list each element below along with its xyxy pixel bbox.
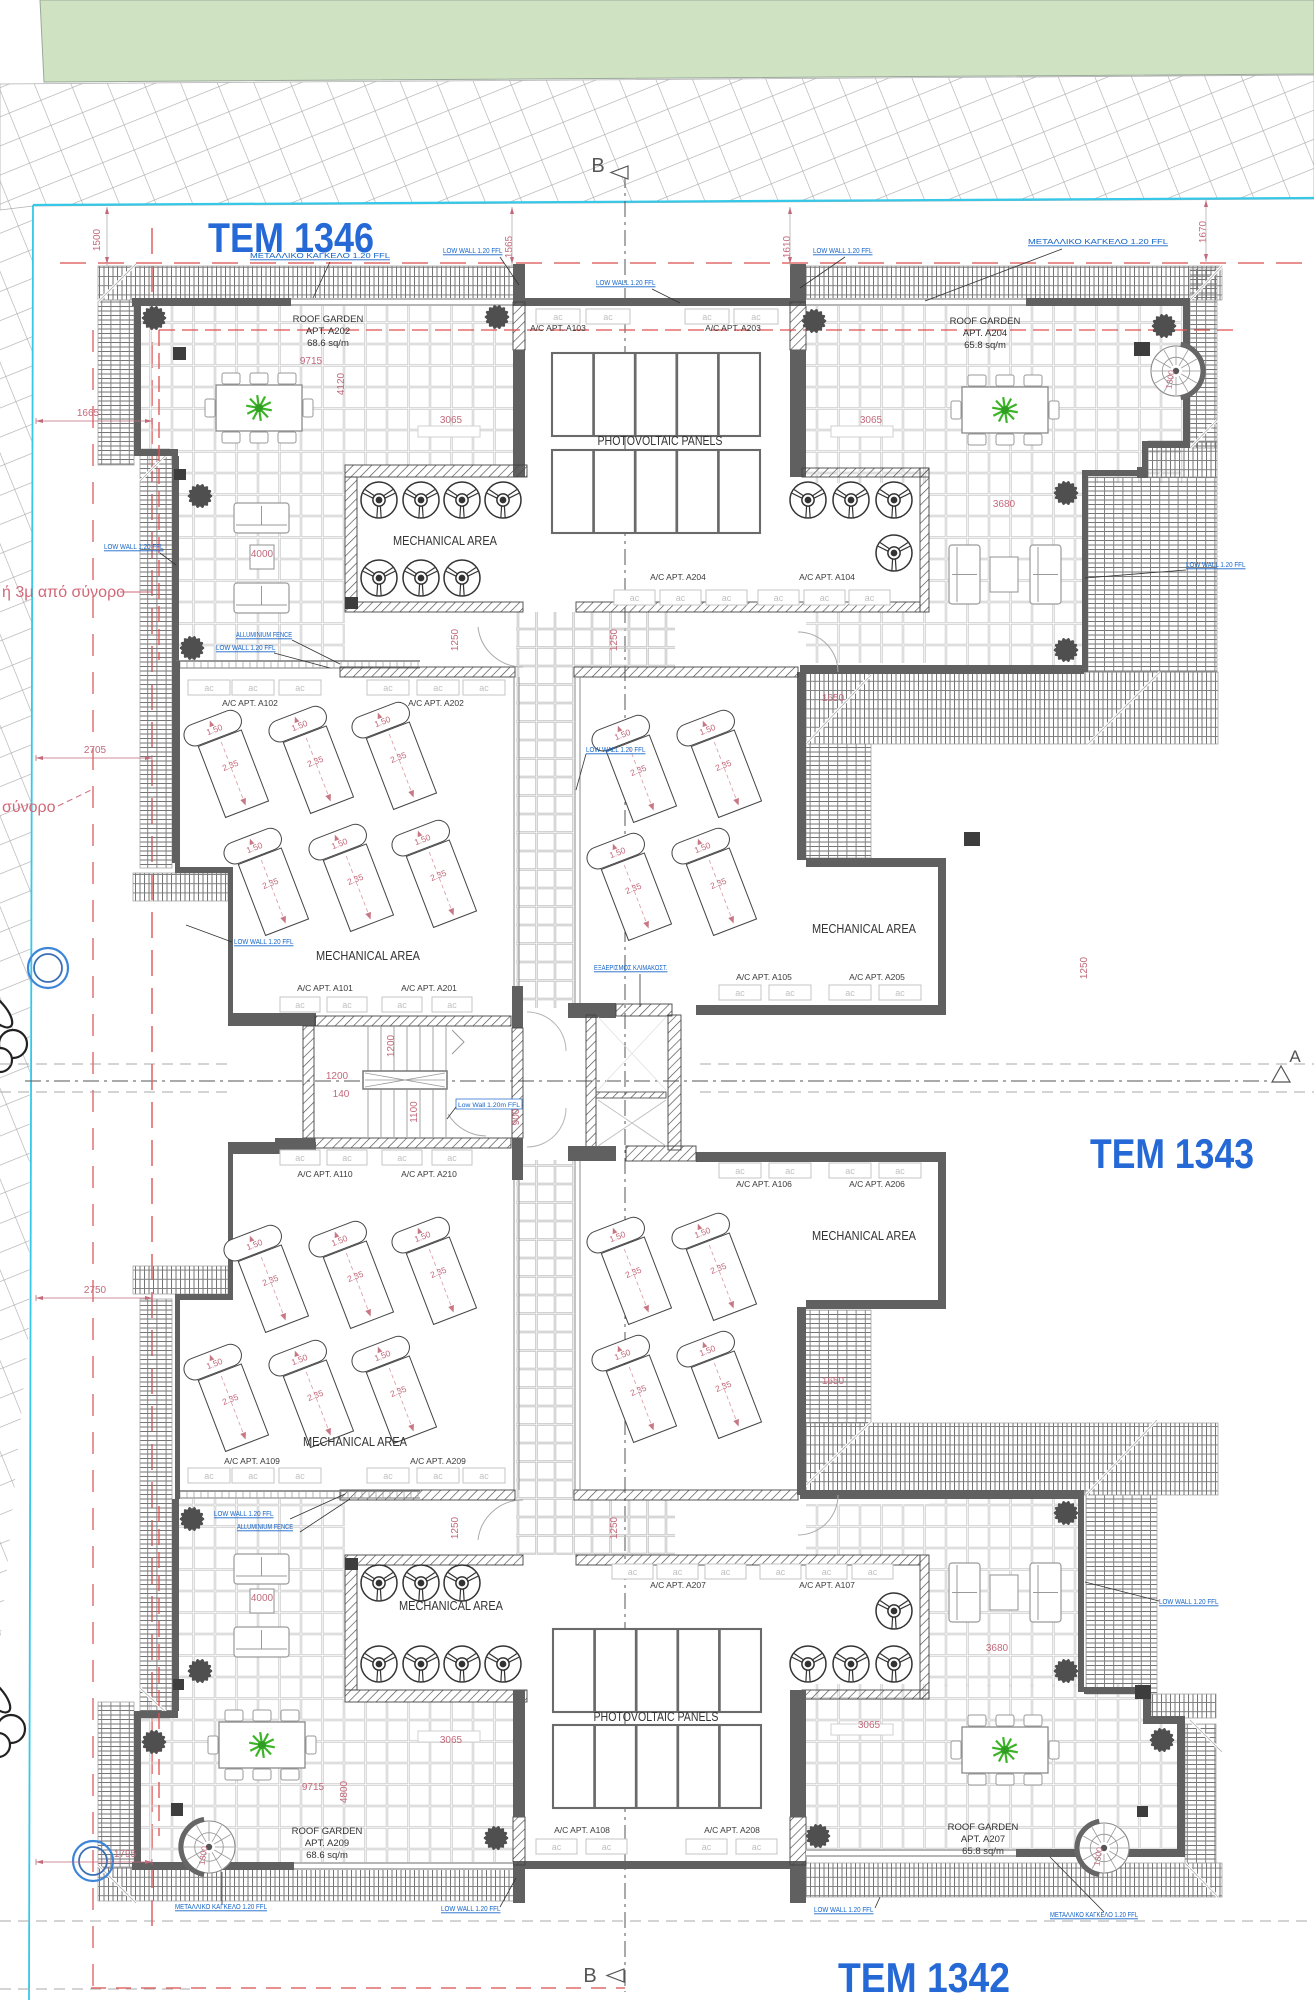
svg-text:1665: 1665 bbox=[77, 408, 100, 419]
svg-text:ac: ac bbox=[735, 1166, 745, 1176]
svg-text:ac: ac bbox=[295, 1153, 305, 1163]
svg-text:ac: ac bbox=[868, 1567, 878, 1577]
svg-text:A/C APT. A110: A/C APT. A110 bbox=[297, 1169, 352, 1179]
svg-text:ac: ac bbox=[397, 1153, 407, 1163]
svg-text:1250: 1250 bbox=[1079, 956, 1090, 979]
svg-text:A/C APT. A210: A/C APT. A210 bbox=[401, 1169, 457, 1179]
svg-text:APT. A209: APT. A209 bbox=[305, 1838, 349, 1849]
svg-text:1200: 1200 bbox=[326, 1071, 349, 1082]
svg-text:ΜΕΤΑΛΛΙΚΟ ΚΑΓΚΕΛΟ 1.20 FFL: ΜΕΤΑΛΛΙΚΟ ΚΑΓΚΕΛΟ 1.20 FFL bbox=[1028, 237, 1168, 246]
svg-text:1500: 1500 bbox=[92, 228, 103, 251]
svg-text:140: 140 bbox=[333, 1089, 350, 1100]
svg-text:σύνορο: σύνορο bbox=[2, 799, 56, 816]
svg-text:1100: 1100 bbox=[409, 1101, 420, 1123]
svg-text:9715: 9715 bbox=[302, 1782, 325, 1793]
svg-text:MECHANICAL AREA: MECHANICAL AREA bbox=[393, 534, 498, 548]
svg-text:A/C APT. A103: A/C APT. A103 bbox=[530, 323, 586, 333]
svg-text:LOW WALL 1.20 FFL: LOW WALL 1.20 FFL bbox=[813, 246, 873, 255]
svg-text:ac: ac bbox=[248, 683, 258, 693]
svg-text:ac: ac bbox=[295, 1471, 305, 1481]
svg-text:ac: ac bbox=[433, 683, 443, 693]
svg-text:ac: ac bbox=[845, 1166, 855, 1176]
svg-text:LOW WALL 1.20 FFL: LOW WALL 1.20 FFL bbox=[586, 745, 646, 754]
svg-text:4120: 4120 bbox=[336, 372, 347, 395]
svg-text:ac: ac bbox=[553, 312, 563, 322]
svg-text:ROOF GARDEN: ROOF GARDEN bbox=[292, 1826, 363, 1837]
svg-text:ac: ac bbox=[865, 593, 875, 603]
svg-text:A/C APT. A206: A/C APT. A206 bbox=[849, 1179, 905, 1189]
svg-text:LOW WALL 1.20 FFL: LOW WALL 1.20 FFL bbox=[214, 1509, 274, 1518]
svg-text:3065: 3065 bbox=[440, 1735, 463, 1746]
svg-text:LOW WALL 1.20 FFL: LOW WALL 1.20 FFL bbox=[1186, 560, 1246, 569]
svg-text:1610: 1610 bbox=[782, 235, 793, 258]
svg-text:A/C APT. A207: A/C APT. A207 bbox=[650, 1580, 706, 1590]
svg-text:1250: 1250 bbox=[609, 1516, 620, 1539]
svg-text:ac: ac bbox=[673, 1567, 683, 1577]
svg-text:900: 900 bbox=[511, 1108, 522, 1125]
svg-text:ac: ac bbox=[342, 1000, 352, 1010]
svg-text:MECHANICAL AREA: MECHANICAL AREA bbox=[812, 922, 917, 936]
svg-text:Low Wall 1.20m FFL: Low Wall 1.20m FFL bbox=[458, 1102, 520, 1109]
svg-text:ac: ac bbox=[479, 1471, 489, 1481]
svg-text:A/C APT. A202: A/C APT. A202 bbox=[408, 698, 464, 708]
svg-text:A/C APT. A106: A/C APT. A106 bbox=[736, 1179, 792, 1189]
svg-text:ac: ac bbox=[721, 1567, 731, 1577]
svg-text:65.8 sq/m: 65.8 sq/m bbox=[964, 340, 1006, 351]
svg-text:3680: 3680 bbox=[993, 499, 1016, 510]
svg-text:3065: 3065 bbox=[858, 1720, 881, 1731]
svg-text:ac: ac bbox=[702, 1842, 712, 1852]
svg-text:ac: ac bbox=[204, 683, 214, 693]
svg-text:A: A bbox=[1289, 1047, 1301, 1066]
svg-text:LOW WALL 1.20 FFL: LOW WALL 1.20 FFL bbox=[216, 643, 276, 652]
svg-text:3680: 3680 bbox=[986, 1643, 1009, 1654]
svg-text:LOW WALL 1.20 FFL: LOW WALL 1.20 FFL bbox=[234, 937, 294, 946]
svg-text:TEM 1342: TEM 1342 bbox=[838, 1954, 1010, 2000]
svg-text:ac: ac bbox=[785, 988, 795, 998]
svg-text:ac: ac bbox=[785, 1166, 795, 1176]
svg-text:ac: ac bbox=[895, 1166, 905, 1176]
svg-text:3065: 3065 bbox=[440, 415, 463, 426]
svg-text:ac: ac bbox=[295, 683, 305, 693]
svg-text:ac: ac bbox=[845, 988, 855, 998]
svg-text:ΜΕΤΑΛΛΙΚΟ ΚΑΓΚΕΛΟ 1.20 FFL: ΜΕΤΑΛΛΙΚΟ ΚΑΓΚΕΛΟ 1.20 FFL bbox=[250, 251, 390, 260]
svg-text:A/C APT. A204: A/C APT. A204 bbox=[650, 572, 706, 582]
svg-text:ROOF GARDEN: ROOF GARDEN bbox=[948, 1822, 1019, 1833]
svg-text:3065: 3065 bbox=[860, 415, 883, 426]
svg-text:LOW WALL 1.20 FFL: LOW WALL 1.20 FFL bbox=[443, 246, 503, 255]
svg-text:1650: 1650 bbox=[822, 1376, 845, 1387]
svg-text:ac: ac bbox=[397, 1000, 407, 1010]
svg-text:ac: ac bbox=[602, 1842, 612, 1852]
svg-text:TEM 1343: TEM 1343 bbox=[1090, 1130, 1254, 1177]
svg-text:ac: ac bbox=[676, 593, 686, 603]
svg-text:ΜΕΤΑΛΛΙΚΟ ΚΑΓΚΕΛΟ 1.20 FFL: ΜΕΤΑΛΛΙΚΟ ΚΑΓΚΕΛΟ 1.20 FFL bbox=[175, 1902, 267, 1911]
svg-text:ac: ac bbox=[774, 593, 784, 603]
svg-text:1200: 1200 bbox=[386, 1034, 397, 1057]
svg-text:ac: ac bbox=[295, 1000, 305, 1010]
svg-text:A/C APT. A208: A/C APT. A208 bbox=[704, 1825, 760, 1835]
svg-text:A/C APT. A104: A/C APT. A104 bbox=[799, 572, 855, 582]
svg-text:9715: 9715 bbox=[300, 356, 323, 367]
svg-text:MECHANICAL AREA: MECHANICAL AREA bbox=[303, 1435, 408, 1449]
svg-text:ac: ac bbox=[751, 312, 761, 322]
svg-text:ac: ac bbox=[479, 683, 489, 693]
svg-text:PHOTOVOLTAIC PANELS: PHOTOVOLTAIC PANELS bbox=[598, 434, 723, 448]
svg-text:LOW WALL 1.20 FFL: LOW WALL 1.20 FFL bbox=[104, 542, 164, 551]
svg-text:ac: ac bbox=[383, 1471, 393, 1481]
svg-text:A/C APT. A108: A/C APT. A108 bbox=[554, 1825, 610, 1835]
svg-text:A/C APT. A101: A/C APT. A101 bbox=[297, 983, 353, 993]
svg-text:ac: ac bbox=[702, 312, 712, 322]
svg-text:ROOF GARDEN: ROOF GARDEN bbox=[950, 316, 1021, 327]
svg-text:ac: ac bbox=[752, 1842, 762, 1852]
svg-text:ac: ac bbox=[628, 1567, 638, 1577]
svg-text:ALLUMINIUM FENCE: ALLUMINIUM FENCE bbox=[237, 1522, 293, 1531]
svg-text:A/C APT. A203: A/C APT. A203 bbox=[705, 323, 761, 333]
svg-text:ac: ac bbox=[383, 683, 393, 693]
svg-text:ac: ac bbox=[248, 1471, 258, 1481]
svg-text:4000: 4000 bbox=[251, 549, 274, 560]
svg-text:4800: 4800 bbox=[339, 1780, 350, 1803]
svg-text:LOW WALL 1.20 FFL: LOW WALL 1.20 FFL bbox=[596, 278, 656, 287]
svg-text:1250: 1250 bbox=[450, 628, 461, 651]
svg-text:MECHANICAL AREA: MECHANICAL AREA bbox=[316, 949, 421, 963]
svg-text:ac: ac bbox=[822, 1567, 832, 1577]
svg-text:A/C APT. A201: A/C APT. A201 bbox=[401, 983, 457, 993]
svg-text:ή 3μ από σύνορο: ή 3μ από σύνορο bbox=[2, 584, 125, 601]
svg-text:A/C APT. A102: A/C APT. A102 bbox=[222, 698, 278, 708]
svg-text:B: B bbox=[583, 1965, 596, 1987]
svg-text:ac: ac bbox=[204, 1471, 214, 1481]
svg-text:MECHANICAL AREA: MECHANICAL AREA bbox=[399, 1599, 504, 1613]
svg-text:1670: 1670 bbox=[1198, 220, 1209, 243]
svg-text:A/C APT. A107: A/C APT. A107 bbox=[799, 1580, 855, 1590]
svg-text:A/C APT. A205: A/C APT. A205 bbox=[849, 972, 905, 982]
svg-text:ac: ac bbox=[735, 988, 745, 998]
svg-text:ac: ac bbox=[447, 1000, 457, 1010]
svg-text:APT. A204: APT. A204 bbox=[963, 328, 1007, 339]
svg-text:ac: ac bbox=[895, 988, 905, 998]
svg-text:1565: 1565 bbox=[504, 235, 515, 258]
svg-text:68.6 sq/m: 68.6 sq/m bbox=[306, 1850, 348, 1861]
svg-text:LOW WALL 1.20 FFL: LOW WALL 1.20 FFL bbox=[814, 1905, 874, 1914]
svg-text:ROOF GARDEN: ROOF GARDEN bbox=[293, 314, 364, 325]
svg-text:ac: ac bbox=[433, 1471, 443, 1481]
svg-text:1795: 1795 bbox=[114, 1849, 137, 1860]
svg-text:ac: ac bbox=[630, 593, 640, 603]
svg-text:ac: ac bbox=[820, 593, 830, 603]
svg-text:1650: 1650 bbox=[822, 693, 845, 704]
svg-text:ac: ac bbox=[447, 1153, 457, 1163]
svg-text:ac: ac bbox=[603, 312, 613, 322]
svg-text:B: B bbox=[591, 155, 604, 177]
svg-text:A/C APT. A109: A/C APT. A109 bbox=[224, 1456, 280, 1466]
svg-text:MECHANICAL AREA: MECHANICAL AREA bbox=[812, 1229, 917, 1243]
svg-text:ΜΕΤΑΛΛΙΚΟ ΚΑΓΚΕΛΟ 1.20 FFL: ΜΕΤΑΛΛΙΚΟ ΚΑΓΚΕΛΟ 1.20 FFL bbox=[1050, 1910, 1138, 1919]
svg-text:ac: ac bbox=[722, 593, 732, 603]
svg-text:1250: 1250 bbox=[450, 1516, 461, 1539]
svg-text:4000: 4000 bbox=[251, 1593, 274, 1604]
svg-text:APT. A207: APT. A207 bbox=[961, 1834, 1005, 1845]
svg-text:LOW WALL 1.20 FFL: LOW WALL 1.20 FFL bbox=[441, 1904, 501, 1913]
svg-text:A/C APT. A105: A/C APT. A105 bbox=[736, 972, 792, 982]
svg-text:ac: ac bbox=[552, 1842, 562, 1852]
svg-text:68.6 sq/m: 68.6 sq/m bbox=[307, 338, 349, 349]
svg-text:1250: 1250 bbox=[609, 628, 620, 651]
svg-text:ΕΞΑΕΡΙΣΜΟΣ ΚΛΙΜΑΚΟΣΤ.: ΕΞΑΕΡΙΣΜΟΣ ΚΛΙΜΑΚΟΣΤ. bbox=[594, 963, 668, 972]
svg-text:PHOTOVOLTAIC PANELS: PHOTOVOLTAIC PANELS bbox=[594, 1710, 719, 1724]
svg-text:ALLUMINIUM FENCE: ALLUMINIUM FENCE bbox=[236, 630, 292, 639]
svg-text:2750: 2750 bbox=[84, 1285, 107, 1296]
svg-text:65.8 sq/m: 65.8 sq/m bbox=[962, 1846, 1004, 1857]
svg-text:ac: ac bbox=[776, 1567, 786, 1577]
svg-text:LOW WALL 1.20 FFL: LOW WALL 1.20 FFL bbox=[1159, 1597, 1219, 1606]
svg-text:2705: 2705 bbox=[84, 745, 107, 756]
svg-text:ac: ac bbox=[342, 1153, 352, 1163]
svg-text:A/C APT. A209: A/C APT. A209 bbox=[410, 1456, 466, 1466]
svg-text:APT. A202: APT. A202 bbox=[306, 326, 350, 337]
